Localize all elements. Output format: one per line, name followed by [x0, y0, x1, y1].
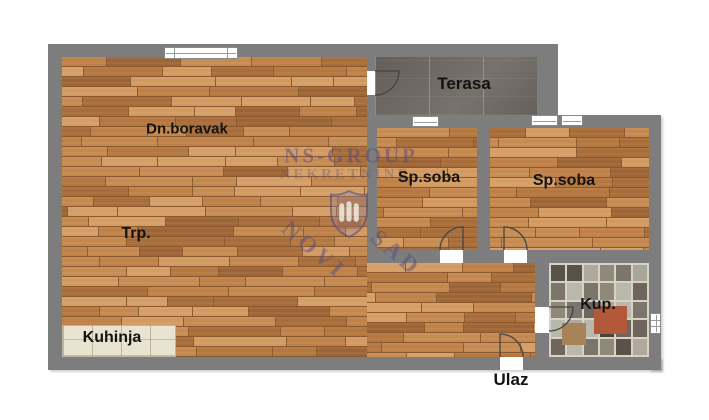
wall-left [48, 44, 62, 370]
wall-terrace-right [537, 44, 558, 115]
window-bedroom1-icon [412, 116, 439, 127]
floor-bedroom1 [377, 128, 477, 250]
wall-living-bedroom1 [367, 128, 377, 250]
floor-living-dining [62, 57, 367, 357]
label-kitchen: Kuhinja [83, 329, 142, 347]
wall-bottom [48, 357, 661, 370]
label-terrace: Terasa [437, 74, 491, 94]
label-bedroom2: Sp.soba [533, 172, 595, 190]
label-entrance: Ulaz [494, 370, 529, 390]
wall-below-bedrooms [367, 250, 661, 263]
floor-hallway [367, 263, 535, 357]
label-dining: Trp. [121, 225, 150, 243]
window-living-top-icon [164, 47, 238, 59]
window-bathroom-icon [650, 313, 661, 334]
wall-top [48, 44, 558, 57]
floor-plan: Dn.boravak Terasa Sp.soba Sp.soba Trp. K… [48, 44, 661, 370]
wall-bedroom-separator [477, 128, 490, 250]
wall-bathroom-left [535, 250, 549, 357]
wall-terrace-left [367, 57, 375, 115]
label-bathroom: Kup. [580, 296, 616, 314]
label-living-room: Dn.boravak [146, 121, 228, 138]
window-bedroom2-left-icon [531, 115, 558, 126]
window-bedroom2-right-icon [561, 115, 583, 126]
label-bedroom1: Sp.soba [398, 169, 460, 187]
